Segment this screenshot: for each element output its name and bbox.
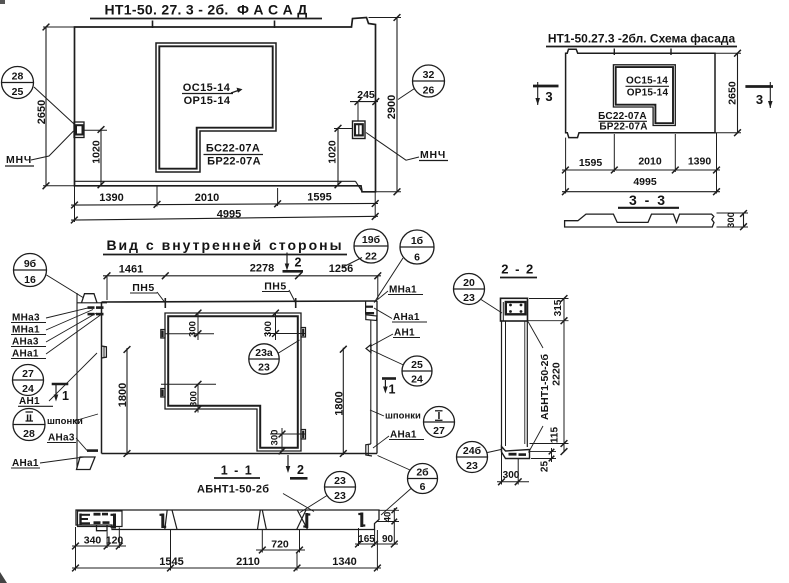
svg-text:19б: 19б xyxy=(362,234,381,246)
svg-text:24: 24 xyxy=(411,374,423,386)
svg-text:1595: 1595 xyxy=(307,191,331,203)
svg-text:23: 23 xyxy=(463,292,475,304)
svg-text:120: 120 xyxy=(106,535,124,547)
svg-text:БС22-07А: БС22-07А xyxy=(206,143,260,155)
svg-text:245: 245 xyxy=(357,89,375,101)
svg-text:2900: 2900 xyxy=(386,95,398,119)
svg-text:300: 300 xyxy=(503,470,520,481)
svg-text:23: 23 xyxy=(466,460,478,472)
svg-text:2: 2 xyxy=(297,463,304,477)
svg-text:1: 1 xyxy=(389,383,396,397)
svg-text:2б: 2б xyxy=(416,466,429,478)
svg-text:2010: 2010 xyxy=(638,156,662,168)
svg-text:АНа3: АНа3 xyxy=(12,337,39,348)
svg-text:БР22-07А: БР22-07А xyxy=(599,122,647,133)
svg-text:ОС15-14: ОС15-14 xyxy=(183,82,231,94)
svg-text:27: 27 xyxy=(433,425,445,437)
svg-text:90: 90 xyxy=(382,534,394,545)
svg-text:23: 23 xyxy=(334,475,346,487)
svg-text:МНа3: МНа3 xyxy=(12,313,40,324)
svg-text:2650: 2650 xyxy=(727,81,739,105)
svg-text:2: 2 xyxy=(295,256,302,270)
svg-text:28: 28 xyxy=(12,70,24,82)
svg-text:ПН5: ПН5 xyxy=(132,282,154,294)
svg-text:1256: 1256 xyxy=(329,263,353,275)
svg-text:1390: 1390 xyxy=(99,192,123,204)
svg-text:II: II xyxy=(26,412,32,424)
svg-text:23: 23 xyxy=(334,490,346,502)
svg-text:Вид с внутренней стороны: Вид с внутренней стороны xyxy=(106,237,343,253)
svg-text:АНа1: АНа1 xyxy=(12,349,39,360)
svg-text:28: 28 xyxy=(23,428,35,440)
svg-text:1б: 1б xyxy=(411,235,424,247)
svg-text:2110: 2110 xyxy=(236,556,260,568)
svg-text:4995: 4995 xyxy=(633,176,657,188)
svg-text:НТ1-50. 27. 3 - 2б. Ф А С А Д: НТ1-50. 27. 3 - 2б. Ф А С А Д xyxy=(105,2,308,18)
svg-text:25: 25 xyxy=(411,359,423,371)
svg-text:1595: 1595 xyxy=(579,157,603,169)
svg-text:1800: 1800 xyxy=(334,391,346,415)
svg-text:25: 25 xyxy=(540,461,551,473)
svg-text:НТ1-50.27.3 -2бл. Схема фасада: НТ1-50.27.3 -2бл. Схема фасада xyxy=(548,32,736,46)
svg-text:3: 3 xyxy=(545,89,552,104)
svg-text:АН1: АН1 xyxy=(19,396,40,407)
svg-text:АНа1: АНа1 xyxy=(390,430,417,441)
svg-text:1545: 1545 xyxy=(159,556,183,568)
svg-text:22: 22 xyxy=(365,251,377,263)
svg-text:шпонки: шпонки xyxy=(385,411,421,422)
svg-text:АБНТ1-50-2б: АБНТ1-50-2б xyxy=(539,354,551,420)
svg-text:24: 24 xyxy=(22,383,34,395)
svg-text:115: 115 xyxy=(550,426,561,443)
svg-text:1 - 1: 1 - 1 xyxy=(221,464,254,478)
svg-text:720: 720 xyxy=(271,539,289,551)
svg-text:16: 16 xyxy=(24,274,36,286)
svg-text:1390: 1390 xyxy=(688,156,712,168)
svg-text:АНа1: АНа1 xyxy=(12,458,39,469)
svg-text:300: 300 xyxy=(188,321,199,337)
svg-text:25: 25 xyxy=(12,86,24,98)
svg-text:9б: 9б xyxy=(24,258,37,270)
svg-text:АНа3: АНа3 xyxy=(48,433,75,444)
svg-text:шпонки: шпонки xyxy=(47,416,83,427)
svg-text:24б: 24б xyxy=(463,445,482,457)
svg-text:23а: 23а xyxy=(255,347,273,359)
svg-text:300: 300 xyxy=(270,430,281,446)
svg-text:2220: 2220 xyxy=(551,362,563,386)
svg-text:1020: 1020 xyxy=(91,140,103,164)
svg-text:АБНТ1-50-2б: АБНТ1-50-2б xyxy=(197,484,269,496)
svg-text:1: 1 xyxy=(62,389,69,403)
svg-text:26: 26 xyxy=(423,85,435,97)
svg-text:23: 23 xyxy=(258,362,270,374)
svg-text:МНЧ: МНЧ xyxy=(420,149,446,161)
svg-text:300: 300 xyxy=(263,321,274,337)
svg-text:32: 32 xyxy=(423,69,435,81)
svg-text:ПН5: ПН5 xyxy=(264,281,286,293)
svg-text:1340: 1340 xyxy=(332,556,356,568)
svg-text:БС22-07А: БС22-07А xyxy=(598,111,647,122)
svg-text:20: 20 xyxy=(463,277,475,289)
svg-text:2 - 2: 2 - 2 xyxy=(501,262,535,277)
svg-text:6: 6 xyxy=(420,481,426,493)
svg-text:340: 340 xyxy=(84,535,102,547)
svg-text:6: 6 xyxy=(414,252,420,264)
svg-text:1800: 1800 xyxy=(117,383,129,407)
svg-text:МНа1: МНа1 xyxy=(12,325,40,336)
svg-text:МНЧ: МНЧ xyxy=(6,154,32,166)
svg-text:2010: 2010 xyxy=(195,192,219,204)
svg-text:165: 165 xyxy=(358,534,375,545)
svg-text:300: 300 xyxy=(726,212,737,228)
svg-text:300: 300 xyxy=(189,391,200,407)
svg-text:2650: 2650 xyxy=(36,100,48,124)
svg-text:БР22-07А: БР22-07А xyxy=(207,156,261,168)
svg-text:ОС15-14: ОС15-14 xyxy=(626,76,668,87)
svg-text:40: 40 xyxy=(383,512,394,523)
svg-text:27: 27 xyxy=(22,368,34,380)
svg-text:ОР15-14: ОР15-14 xyxy=(627,88,669,99)
svg-text:3: 3 xyxy=(756,92,763,107)
svg-text:4995: 4995 xyxy=(217,208,241,220)
svg-text:МНа1: МНа1 xyxy=(389,285,417,296)
svg-text:1461: 1461 xyxy=(119,264,143,276)
svg-text:315: 315 xyxy=(553,299,564,316)
svg-text:3 - 3: 3 - 3 xyxy=(629,192,667,208)
svg-text:ОР15-14: ОР15-14 xyxy=(184,95,231,107)
svg-text:АН1: АН1 xyxy=(394,328,415,339)
svg-text:2278: 2278 xyxy=(250,263,274,275)
svg-text:1020: 1020 xyxy=(327,140,339,164)
svg-text:АНа1: АНа1 xyxy=(393,312,420,323)
